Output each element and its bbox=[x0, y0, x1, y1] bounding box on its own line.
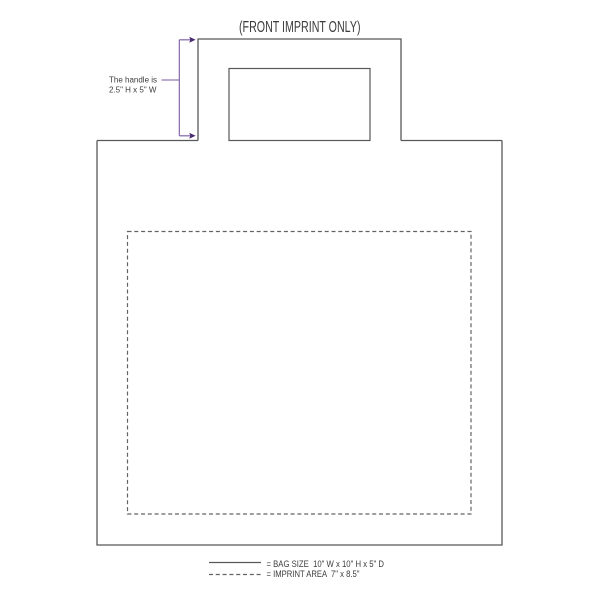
svg-text:The handle is: The handle is bbox=[109, 75, 157, 84]
svg-text:2.5" H x 5" W: 2.5" H x 5" W bbox=[109, 85, 157, 94]
svg-text:= BAG SIZE 10" W x 10" H x 5": = BAG SIZE 10" W x 10" H x 5" D bbox=[267, 559, 385, 569]
svg-text:(FRONT IMPRINT ONLY): (FRONT IMPRINT ONLY) bbox=[239, 19, 361, 36]
svg-text:= IMPRINT AREA 7" x 8.5": = IMPRINT AREA 7" x 8.5" bbox=[267, 569, 360, 579]
